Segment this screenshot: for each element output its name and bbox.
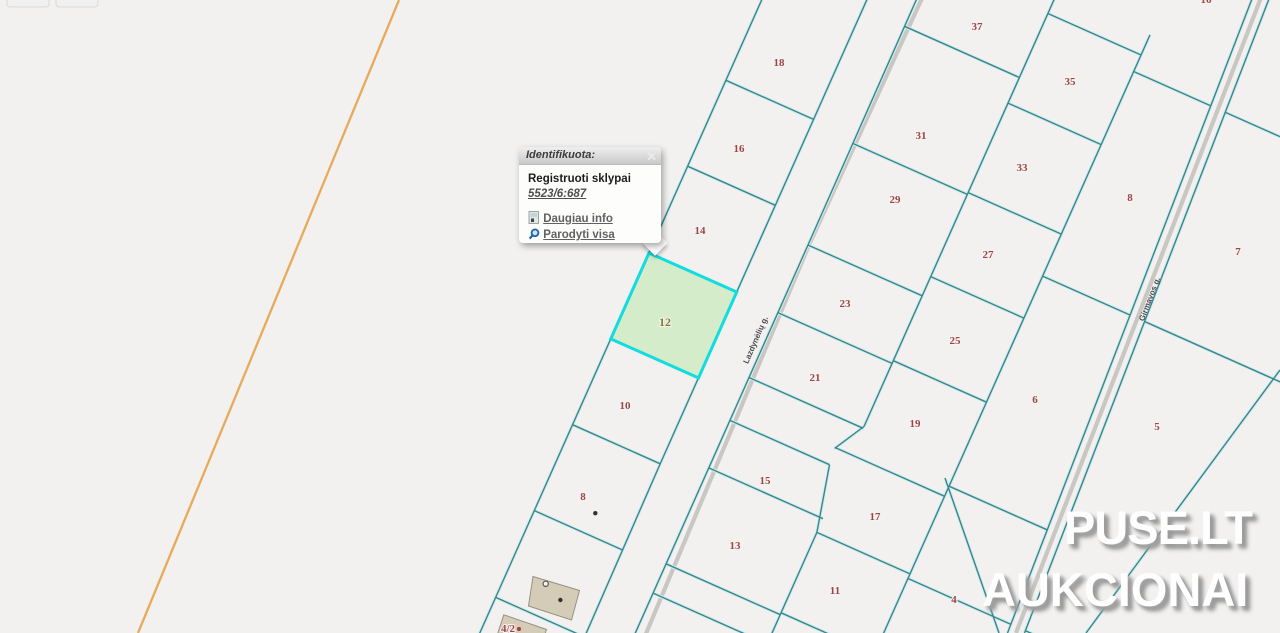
svg-text:17: 17 [870, 511, 882, 523]
svg-text:16: 16 [1201, 0, 1213, 6]
svg-text:8: 8 [1127, 192, 1133, 204]
svg-text:31: 31 [916, 130, 927, 142]
svg-text:25: 25 [950, 335, 962, 347]
svg-text:7: 7 [1235, 246, 1241, 258]
svg-text:12: 12 [659, 315, 671, 329]
svg-text:10: 10 [620, 400, 632, 412]
svg-text:14: 14 [695, 225, 707, 237]
svg-text:18: 18 [774, 57, 786, 69]
svg-text:21: 21 [810, 372, 821, 384]
svg-text:6: 6 [1032, 394, 1038, 406]
svg-text:27: 27 [983, 249, 995, 261]
svg-text:15: 15 [760, 475, 772, 487]
svg-text:11: 11 [830, 585, 840, 597]
svg-text:4/2: 4/2 [501, 623, 516, 633]
svg-text:19: 19 [910, 418, 922, 430]
svg-text:4: 4 [951, 594, 957, 606]
svg-text:37: 37 [972, 21, 984, 33]
svg-text:23: 23 [840, 298, 852, 310]
svg-text:8: 8 [580, 491, 586, 503]
svg-text:13: 13 [730, 540, 742, 552]
svg-text:35: 35 [1065, 76, 1077, 88]
svg-text:5: 5 [1154, 421, 1160, 433]
svg-text:33: 33 [1017, 162, 1029, 174]
svg-text:29: 29 [890, 194, 902, 206]
svg-text:16: 16 [734, 143, 746, 155]
